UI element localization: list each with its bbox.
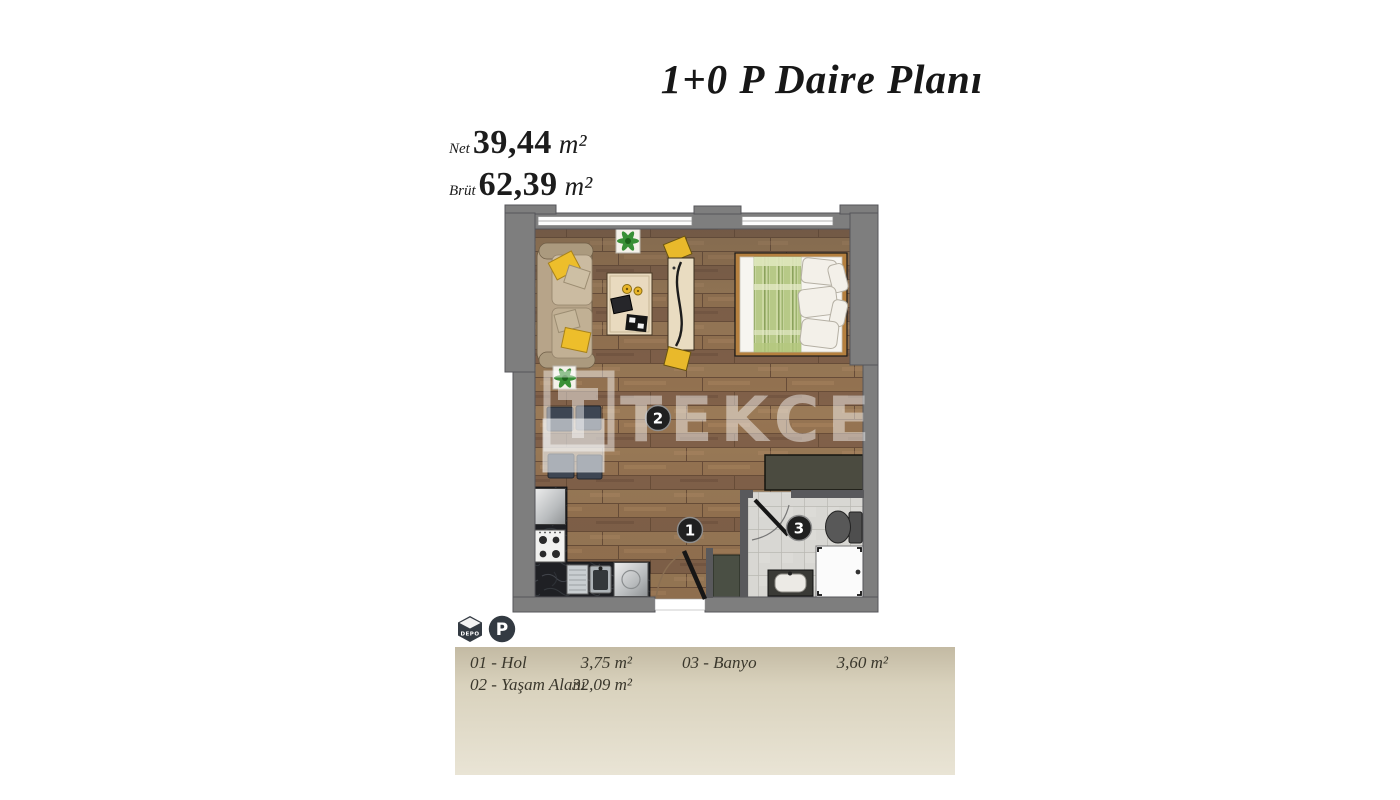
- bed: [735, 253, 849, 356]
- marker-3: 3: [794, 520, 804, 538]
- toilet: [826, 511, 863, 543]
- entry-cabinet: [713, 555, 740, 597]
- net-area-line: Net 39,44 m²: [449, 124, 586, 162]
- storage-badge-label: DEPO: [460, 632, 479, 638]
- plant-top: [616, 229, 640, 253]
- legend-item-label: 03 - Banyo: [682, 653, 757, 673]
- watermark-text: TEKCE: [620, 383, 878, 456]
- net-unit: m²: [559, 129, 587, 160]
- parking-badge: P: [487, 614, 517, 644]
- legend-item-area: 32,09 m²: [540, 675, 632, 695]
- floor-plan: 1 2 3 TEKCE: [495, 200, 885, 615]
- legend-item-area: 3,75 m²: [540, 653, 632, 673]
- windows: [538, 217, 833, 226]
- coffee-table: [607, 273, 652, 335]
- storage-badge: DEPO: [455, 614, 485, 644]
- gross-area-line: Brüt 62,39 m²: [449, 166, 592, 204]
- fridge: [535, 489, 566, 525]
- laptop: [611, 295, 633, 314]
- dishwasher: [614, 563, 648, 597]
- green-blanket: [754, 257, 801, 352]
- net-value: 39,44: [473, 124, 552, 162]
- entry-threshold: [655, 599, 705, 610]
- legend-item-label: 01 - Hol: [470, 653, 527, 673]
- marker-1: 1: [685, 522, 695, 540]
- magazine: [625, 314, 648, 332]
- net-label: Net: [449, 141, 470, 158]
- gross-value: 62,39: [479, 166, 558, 204]
- bathroom-sink: [768, 570, 813, 596]
- shower: [816, 546, 863, 597]
- wardrobe: [765, 455, 863, 490]
- legend-panel: 01 - Hol 3,75 m² 02 - Yaşam Alanı 32,09 …: [455, 647, 955, 775]
- legend-item-area: 3,60 m²: [785, 653, 888, 673]
- floor-plan-page: 1+0 P Daire Planı Net 39,44 m² Brüt 62,3…: [0, 0, 1400, 800]
- sofa: [537, 243, 595, 368]
- plant-left: [553, 366, 576, 389]
- gross-unit: m²: [565, 171, 593, 202]
- feature-badges: DEPO P: [455, 614, 517, 644]
- parking-badge-label: P: [496, 620, 508, 640]
- gross-label: Brüt: [449, 183, 476, 200]
- page-title: 1+0 P Daire Planı: [661, 55, 983, 103]
- stove: [535, 530, 565, 562]
